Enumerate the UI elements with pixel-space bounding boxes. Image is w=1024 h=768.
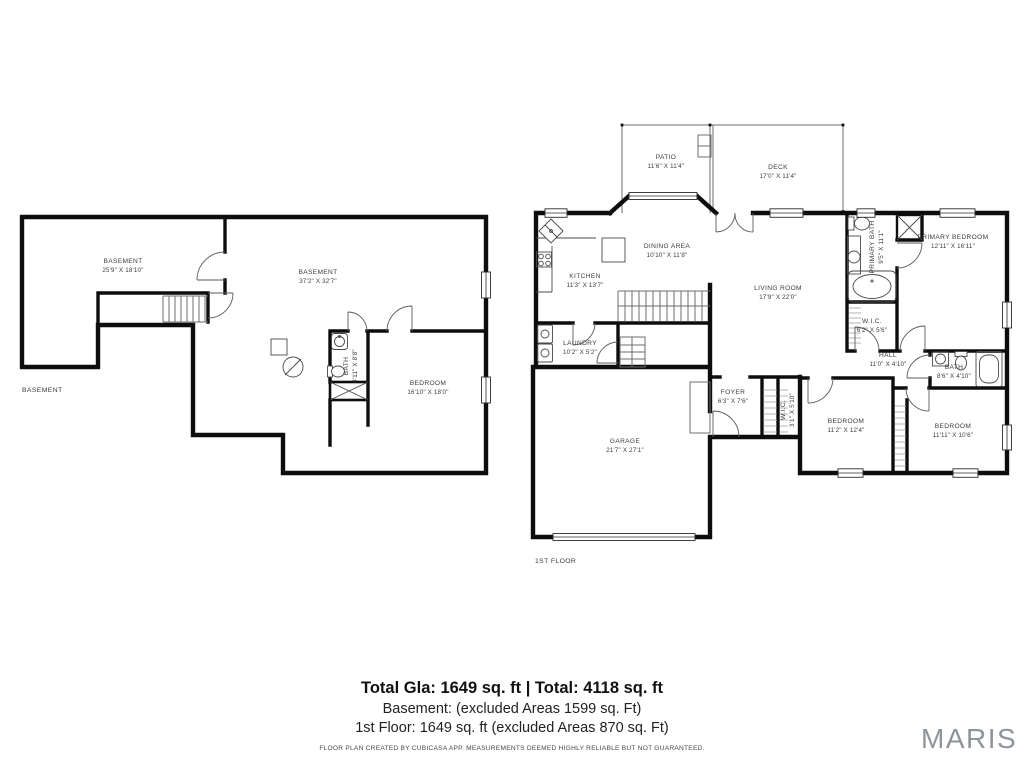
bay-window bbox=[629, 193, 697, 200]
room-label-patio: PATIO 11'6" X 11'4" bbox=[648, 154, 685, 170]
porch-outline bbox=[690, 382, 710, 433]
disclaimer-text: FLOOR PLAN CREATED BY CUBICASA APP. MEAS… bbox=[0, 745, 1024, 752]
basement-sink-fixture bbox=[332, 334, 348, 350]
basement-storage-xbox bbox=[330, 382, 368, 400]
main-stairs bbox=[618, 291, 710, 321]
room-label-deck: DECK 17'0" X 11'4" bbox=[759, 164, 796, 180]
maris-logo: MARIS bbox=[921, 723, 1023, 755]
room-label-basement-main: BASEMENT 37'2" X 32'7" bbox=[298, 269, 337, 285]
basement-door-arcs bbox=[197, 252, 412, 331]
room-label-hall-bath: BATH 8'6" X 4'10" bbox=[937, 364, 971, 380]
room-label-basement-bedroom: BEDROOM 16'10" X 18'0" bbox=[407, 380, 448, 396]
floorplan-page: BASEMENT 25'9" X 18'10" BASEMENT 37'2" X… bbox=[0, 0, 1024, 768]
room-label-primary-bedroom: PRIMARY BEDROOM 12'11" X 16'11" bbox=[918, 234, 989, 250]
winder-stairs bbox=[620, 337, 645, 367]
room-label-primary-bath: PRIMARY BATH 9'5" X 11'1" bbox=[869, 221, 885, 274]
room-label-dining-area: DINING AREA 10'10" X 11'8" bbox=[644, 243, 690, 259]
basement-interior-walls bbox=[98, 217, 486, 445]
room-label-basement-bath: BATH 4'11" X 8'8" bbox=[343, 349, 359, 382]
room-label-hall: HALL 11'0" X 4'10" bbox=[869, 352, 906, 368]
sump-pump bbox=[283, 357, 303, 377]
room-label-garage: GARAGE 21'7" X 27'1" bbox=[606, 438, 644, 454]
support-post bbox=[271, 339, 287, 355]
room-label-laundry: LAUNDRY 10'2" X 5'2" bbox=[563, 340, 597, 356]
room-label-living-room: LIVING ROOM 17'9" X 22'0" bbox=[754, 285, 802, 301]
basement-area-line: Basement: (excluded Areas 1599 sq. Ft) bbox=[0, 701, 1024, 717]
stove-fixture bbox=[537, 252, 552, 267]
room-label-wic-small: W.I.C. 3'1" X 5'10" bbox=[780, 393, 796, 427]
basement-stairs bbox=[163, 296, 208, 322]
first-floor-floorplan bbox=[533, 124, 1012, 541]
basement-exterior-walls bbox=[22, 217, 486, 473]
basement-floorplan bbox=[22, 217, 491, 473]
total-gla-line: Total Gla: 1649 sq. ft | Total: 4118 sq.… bbox=[0, 679, 1024, 698]
floorplan-drawing bbox=[0, 0, 1024, 768]
room-label-bedroom-3: BEDROOM 11'11" X 10'6" bbox=[933, 423, 973, 439]
room-label-foyer: FOYER 6'3" X 7'6" bbox=[718, 389, 748, 405]
room-label-wic-primary: W.I.C. 6'2" X 5'6" bbox=[857, 318, 887, 334]
basement-floor-label: BASEMENT bbox=[22, 387, 63, 394]
room-label-kitchen: KITCHEN 11'3" X 13'7" bbox=[566, 273, 603, 289]
room-label-bedroom-2: BEDROOM 11'2" X 12'4" bbox=[827, 418, 864, 434]
first-floor-label: 1ST FLOOR bbox=[535, 558, 576, 565]
room-label-basement-left: BASEMENT 25'9" X 18'10" bbox=[102, 258, 143, 274]
summary-block: Total Gla: 1649 sq. ft | Total: 4118 sq.… bbox=[0, 679, 1024, 752]
first-floor-area-line: 1st Floor: 1649 sq. ft (excluded Areas 8… bbox=[0, 720, 1024, 736]
garage-door bbox=[553, 534, 695, 541]
washer-dryer-fixtures bbox=[538, 325, 553, 362]
